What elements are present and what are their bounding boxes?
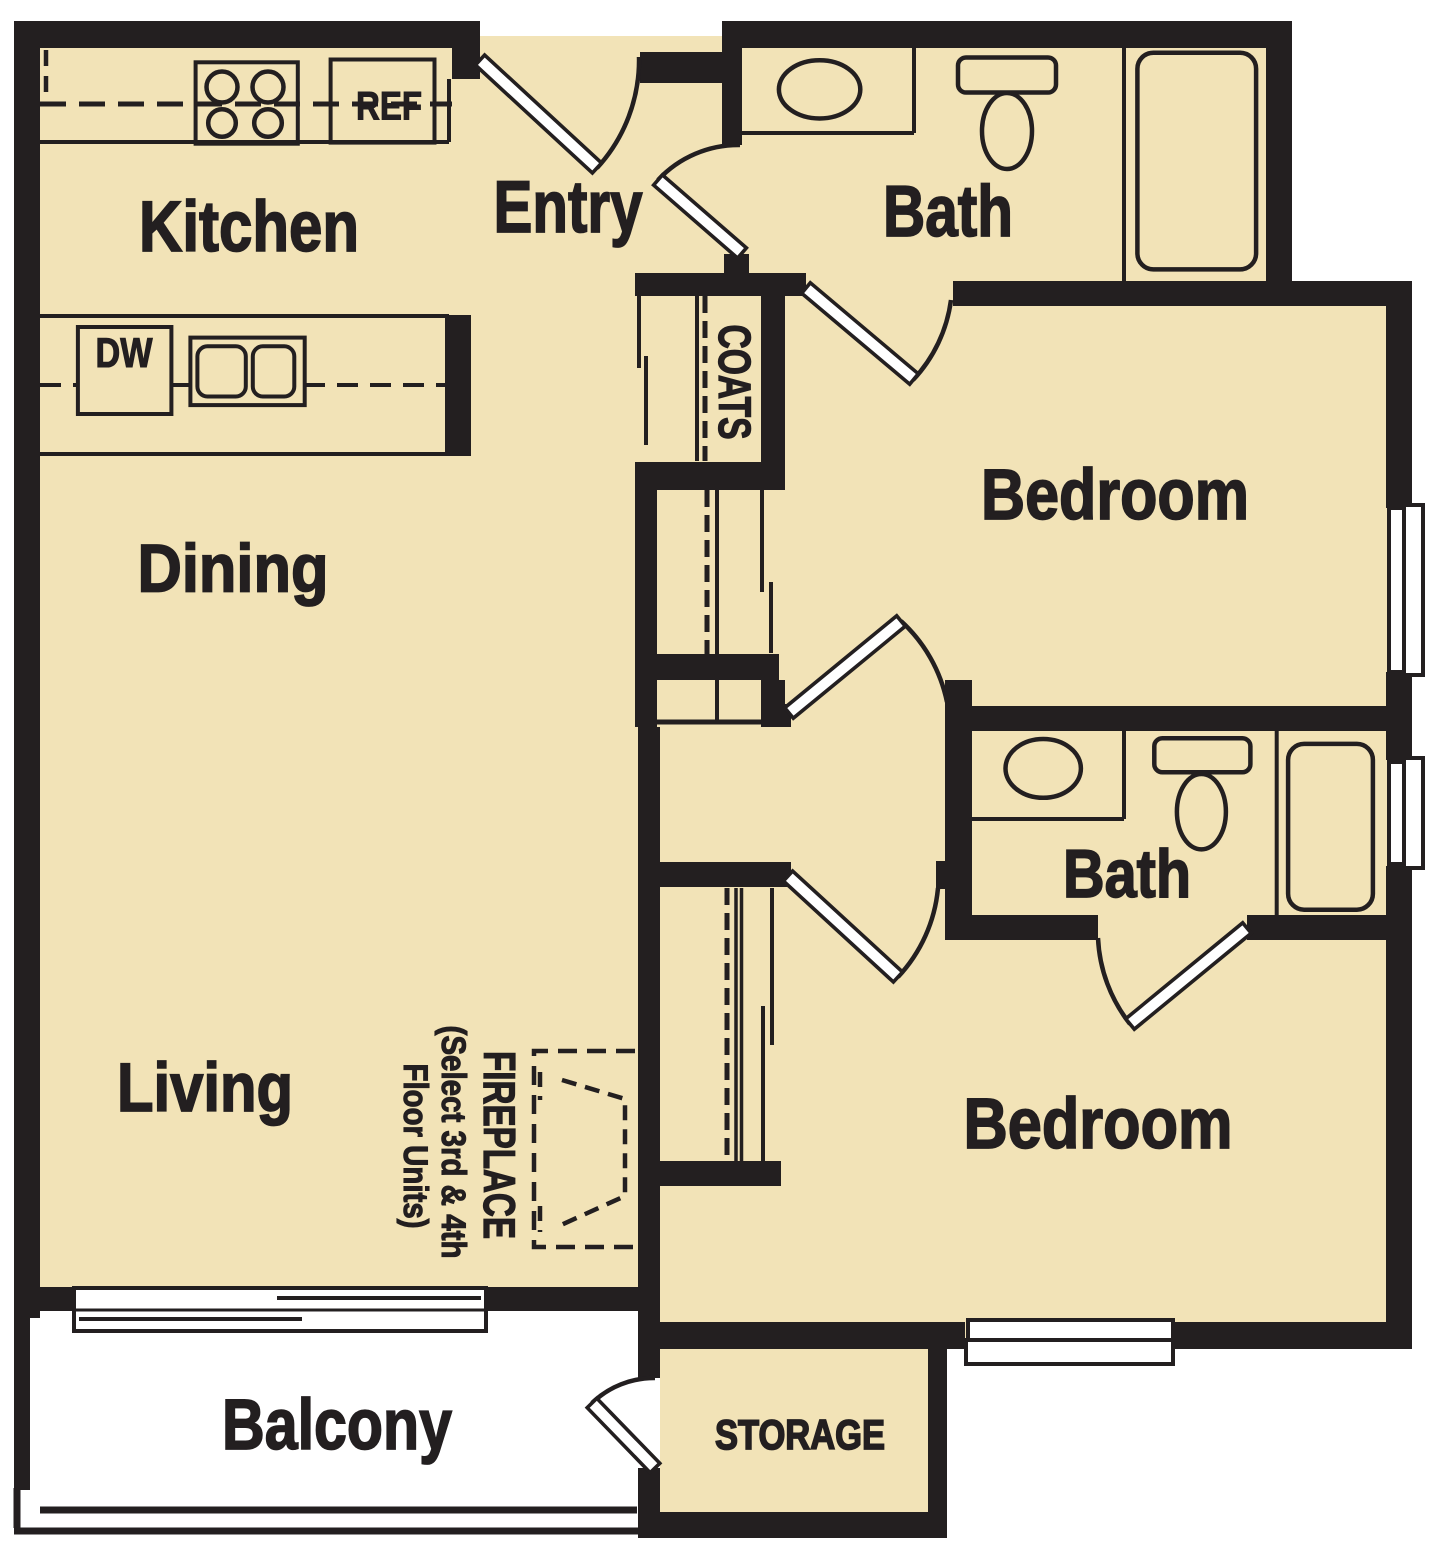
svg-text:Living: Living xyxy=(117,1049,293,1126)
svg-text:(Select 3rd & 4th: (Select 3rd & 4th xyxy=(434,1026,472,1259)
svg-text:Balcony: Balcony xyxy=(222,1386,452,1465)
svg-text:Floor Units): Floor Units) xyxy=(396,1064,434,1229)
svg-text:FIREPLACE: FIREPLACE xyxy=(474,1051,523,1239)
svg-text:Bedroom: Bedroom xyxy=(981,456,1249,535)
svg-text:Bedroom: Bedroom xyxy=(964,1085,1233,1164)
svg-text:Dining: Dining xyxy=(138,531,329,607)
svg-text:Entry: Entry xyxy=(494,167,643,248)
svg-text:STORAGE: STORAGE xyxy=(715,1411,885,1458)
svg-text:Kitchen: Kitchen xyxy=(139,188,359,267)
svg-text:COATS: COATS xyxy=(709,325,760,440)
svg-text:Bath: Bath xyxy=(1063,836,1191,912)
svg-text:REF: REF xyxy=(356,85,422,129)
svg-text:DW: DW xyxy=(96,329,153,376)
svg-text:Bath: Bath xyxy=(883,172,1013,252)
